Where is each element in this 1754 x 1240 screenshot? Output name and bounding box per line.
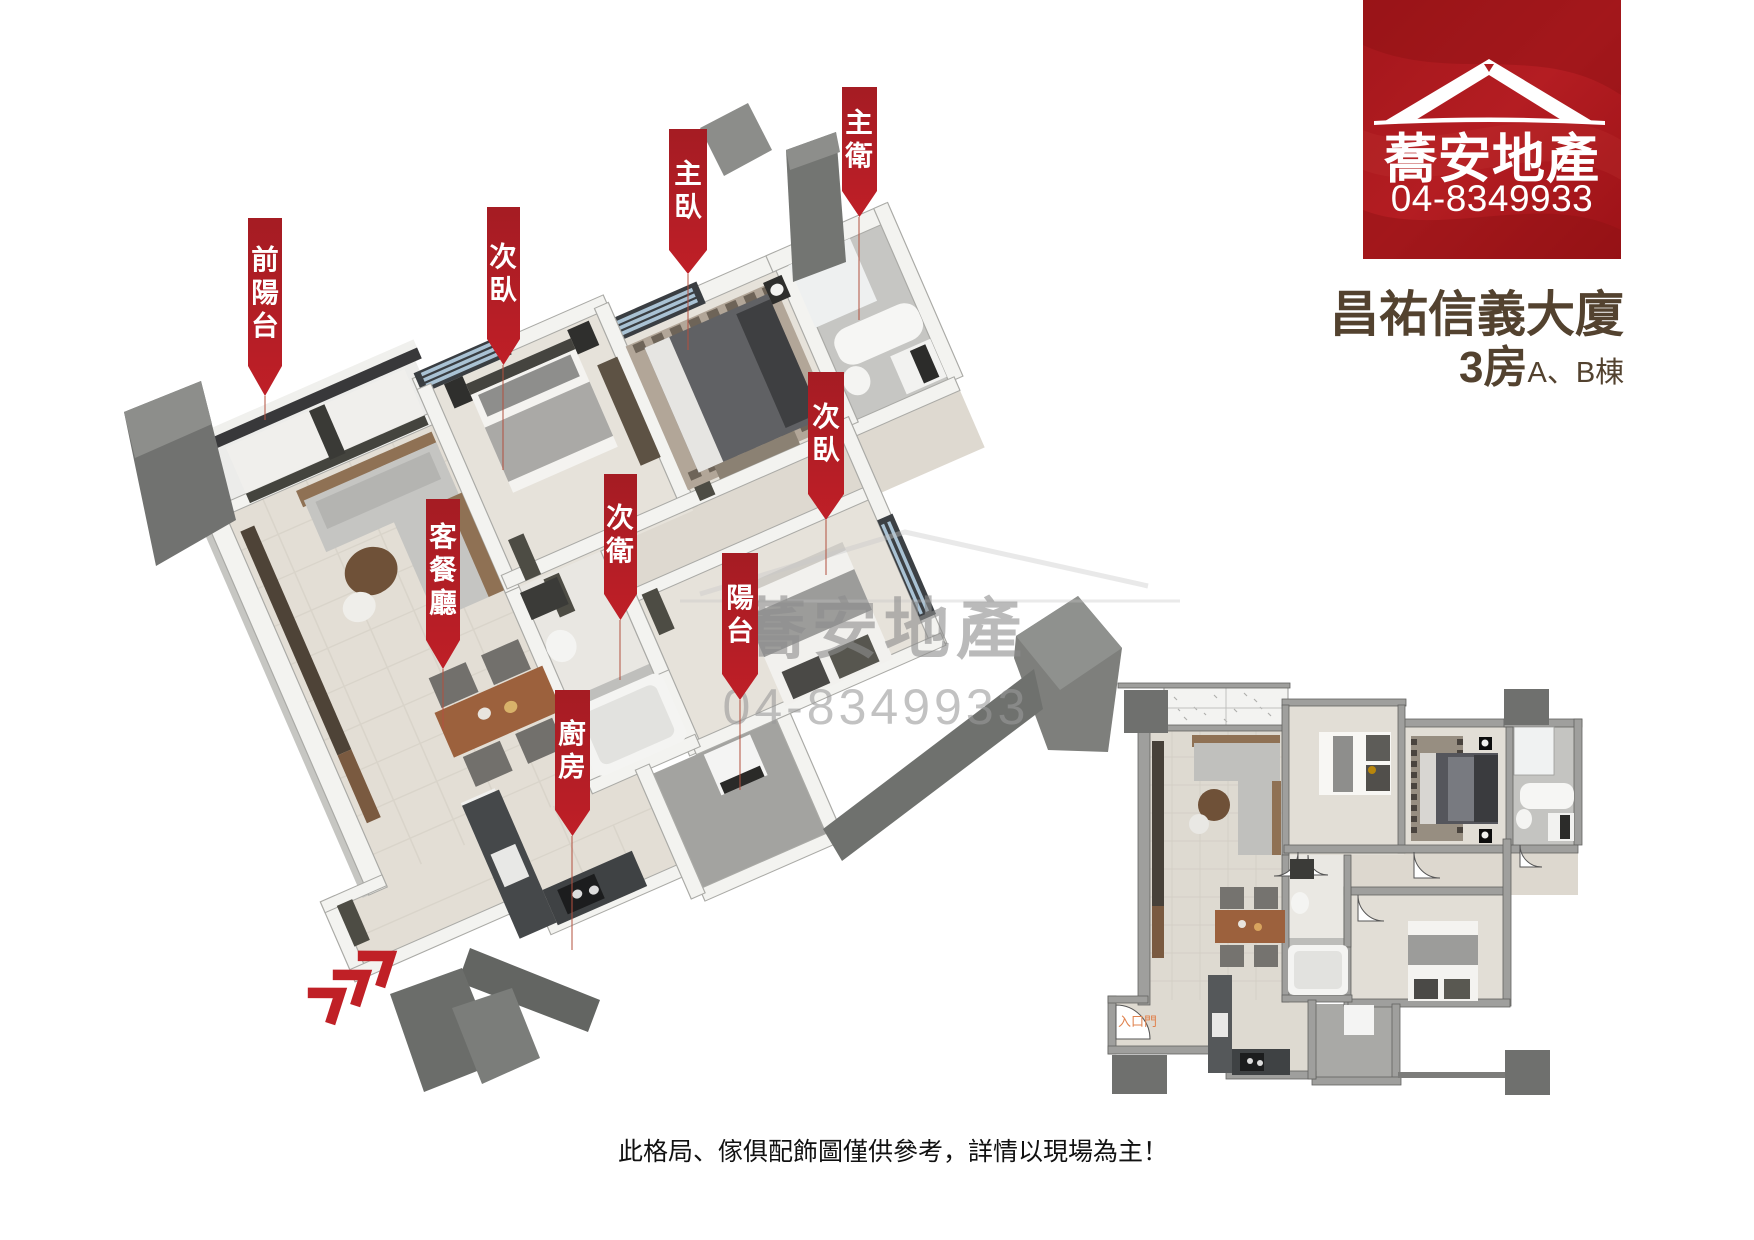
svg-text:陽: 陽 <box>251 277 279 308</box>
svg-text:房: 房 <box>558 751 586 782</box>
svg-text:入口門: 入口門 <box>1118 1014 1157 1029</box>
svg-text:臥: 臥 <box>812 434 840 465</box>
svg-text:臥: 臥 <box>674 191 702 222</box>
svg-text:台: 台 <box>251 310 279 341</box>
svg-text:台: 台 <box>726 615 754 646</box>
svg-text:次: 次 <box>606 502 634 533</box>
svg-text:客: 客 <box>429 521 457 552</box>
svg-text:昌祐信義大廈: 昌祐信義大廈 <box>1330 288 1624 342</box>
svg-text:臥: 臥 <box>489 274 517 305</box>
svg-text:次: 次 <box>489 241 517 272</box>
svg-text:04-8349933: 04-8349933 <box>723 679 1030 735</box>
svg-text:廳: 廳 <box>429 587 457 618</box>
svg-text:衛: 衛 <box>844 140 873 171</box>
svg-text:次: 次 <box>812 401 840 432</box>
svg-text:04-8349933: 04-8349933 <box>1391 178 1594 219</box>
svg-text:此格局、傢俱配飾圖僅供參考，詳情以現場為主！: 此格局、傢俱配飾圖僅供參考，詳情以現場為主！ <box>618 1138 1168 1166</box>
svg-text:蕎安地產: 蕎安地產 <box>740 592 1028 666</box>
svg-text:主: 主 <box>845 107 873 138</box>
svg-text:餐: 餐 <box>429 554 457 585</box>
svg-text:前: 前 <box>251 244 279 275</box>
svg-text:陽: 陽 <box>726 582 754 613</box>
svg-text:衛: 衛 <box>605 535 634 566</box>
svg-text:3房A、B棟: 3房A、B棟 <box>1459 343 1624 392</box>
svg-text:主: 主 <box>674 158 702 189</box>
svg-text:廚: 廚 <box>558 718 586 749</box>
